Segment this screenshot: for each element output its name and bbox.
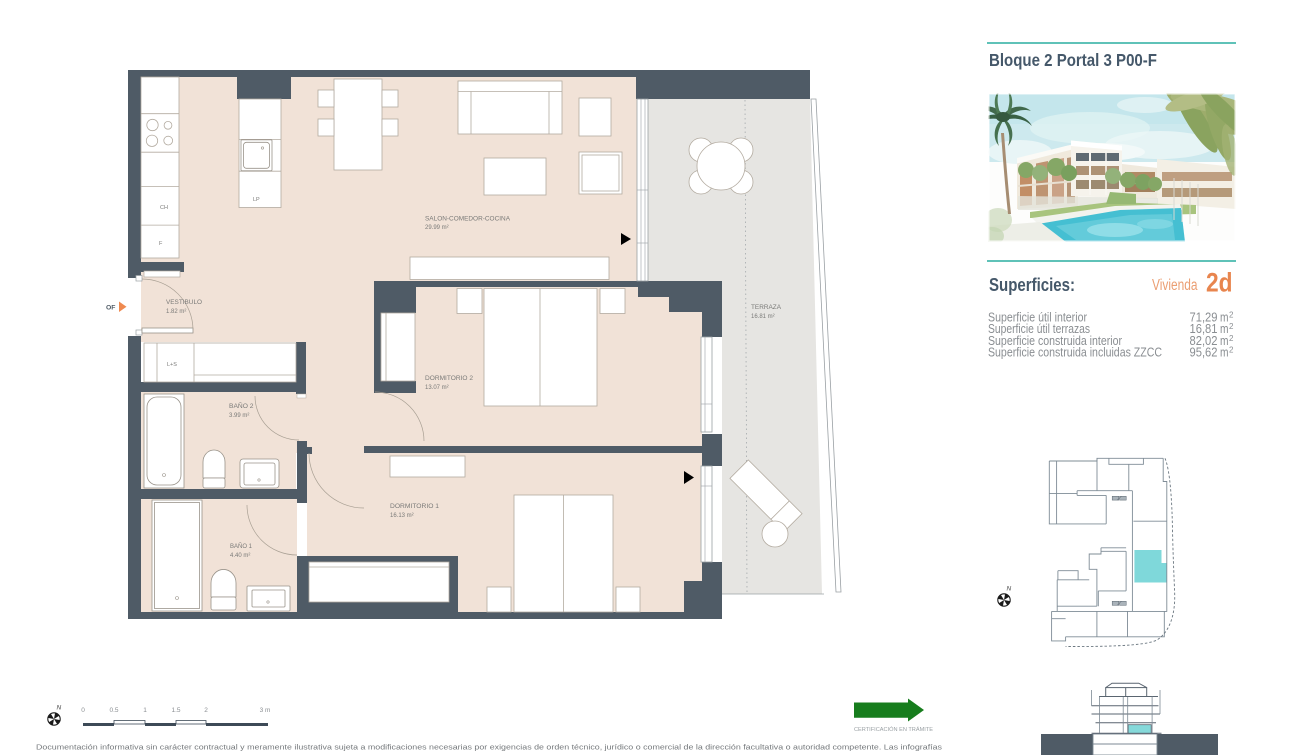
svg-text:3.99 m²: 3.99 m² [229,413,249,419]
svg-text:3 m: 3 m [260,707,271,714]
svg-text:LP: LP [253,197,260,203]
svg-text:N: N [1007,586,1012,593]
svg-text:4.40 m²: 4.40 m² [230,553,250,559]
svg-text:2: 2 [1229,322,1234,331]
svg-text:SALON-COMEDOR-COCINA: SALON-COMEDOR-COCINA [425,216,511,223]
svg-text:13.07 m²: 13.07 m² [425,385,449,391]
svg-text:0.5: 0.5 [109,707,118,714]
svg-text:VESTIBULO: VESTIBULO [166,299,202,306]
svg-text:29.99 m²: 29.99 m² [425,225,449,231]
svg-text:2: 2 [1229,346,1234,355]
svg-text:0: 0 [81,707,85,714]
svg-text:Bloque 2 Portal 3 P00-F: Bloque 2 Portal 3 P00-F [989,50,1157,70]
svg-text:CERTIFICACIÓN EN TRÁMITE: CERTIFICACIÓN EN TRÁMITE [854,726,933,733]
svg-text:1.82 m²: 1.82 m² [166,309,186,315]
svg-text:CH: CH [160,205,168,211]
svg-text:Superficie construida incluida: Superficie construida incluidas ZZCC [988,346,1162,360]
svg-text:TERRAZA: TERRAZA [751,304,782,311]
svg-text:16.13 m²: 16.13 m² [390,513,414,519]
svg-text:16.81 m²: 16.81 m² [751,314,775,320]
svg-text:BAÑO 1: BAÑO 1 [230,541,252,550]
svg-text:2d: 2d [1206,268,1233,298]
svg-text:N: N [57,705,62,712]
svg-text:DORMITORIO 1: DORMITORIO 1 [390,503,439,510]
svg-text:Documentación informativa sin: Documentación informativa sin carácter c… [36,745,943,752]
svg-text:1.5: 1.5 [171,707,180,714]
svg-text:2: 2 [204,707,208,714]
svg-text:95,62: 95,62 [1190,346,1218,360]
svg-text:Superficies:: Superficies: [989,274,1075,295]
svg-text:BAÑO 2: BAÑO 2 [229,401,254,410]
svg-text:2: 2 [1229,311,1234,320]
svg-text:OF: OF [106,305,115,312]
svg-text:2: 2 [1229,334,1234,343]
svg-text:DORMITORIO 2: DORMITORIO 2 [425,375,473,382]
svg-text:Vivienda: Vivienda [1152,277,1198,294]
svg-text:1: 1 [143,707,147,714]
svg-text:m: m [1220,346,1229,360]
svg-text:L+S: L+S [167,362,177,368]
